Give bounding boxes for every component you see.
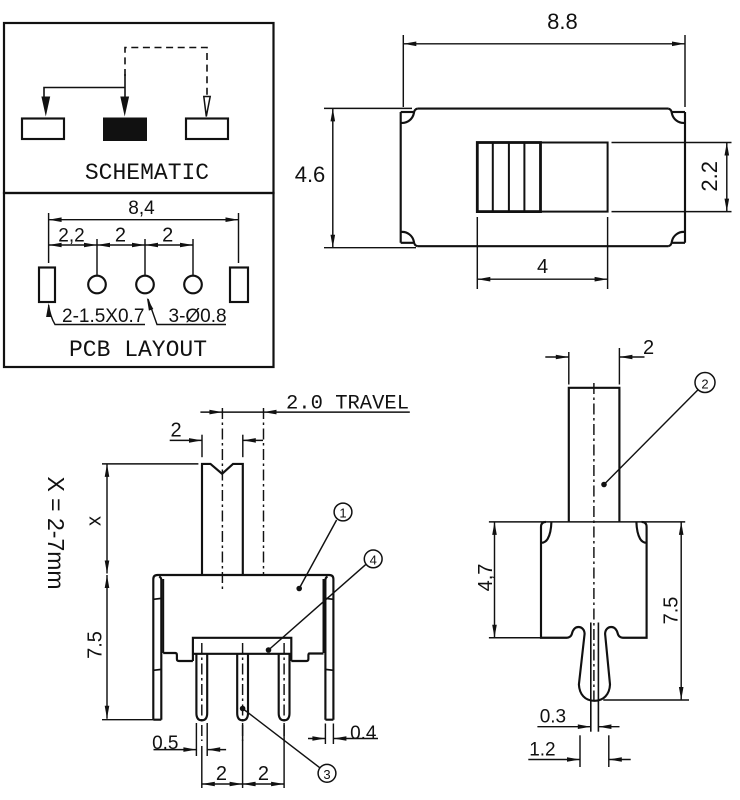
svg-text:3-Ø0.8: 3-Ø0.8: [169, 306, 227, 327]
svg-text:1: 1: [339, 506, 346, 521]
svg-text:4: 4: [370, 552, 377, 567]
svg-text:4: 4: [537, 256, 548, 278]
svg-text:2: 2: [258, 763, 269, 785]
svg-text:7.5: 7.5: [661, 597, 683, 625]
svg-text:X = 2-7mm: X = 2-7mm: [43, 476, 69, 589]
svg-text:2.2: 2.2: [697, 161, 722, 192]
svg-text:2: 2: [216, 763, 227, 785]
svg-text:8.8: 8.8: [547, 9, 578, 34]
svg-text:PCB LAYOUT: PCB LAYOUT: [69, 337, 207, 363]
svg-text:3: 3: [323, 767, 330, 782]
svg-text:2: 2: [170, 420, 181, 442]
svg-text:0.4: 0.4: [350, 723, 377, 744]
svg-text:2: 2: [162, 225, 173, 247]
svg-text:0.3: 0.3: [540, 707, 566, 728]
svg-text:2: 2: [643, 337, 654, 359]
svg-text:2,2: 2,2: [58, 226, 84, 247]
svg-text:x: x: [84, 516, 106, 526]
svg-text:2-1.5X0.7: 2-1.5X0.7: [62, 306, 144, 327]
svg-text:2: 2: [115, 225, 126, 247]
svg-text:2: 2: [701, 377, 708, 392]
svg-text:8,4: 8,4: [128, 198, 155, 219]
svg-text:1.2: 1.2: [529, 740, 555, 761]
svg-text:7.5: 7.5: [85, 631, 107, 659]
svg-text:SCHEMATIC: SCHEMATIC: [85, 160, 209, 186]
svg-text:4.6: 4.6: [295, 162, 326, 187]
svg-text:0.5: 0.5: [152, 733, 178, 754]
svg-text:4,7: 4,7: [475, 564, 497, 592]
